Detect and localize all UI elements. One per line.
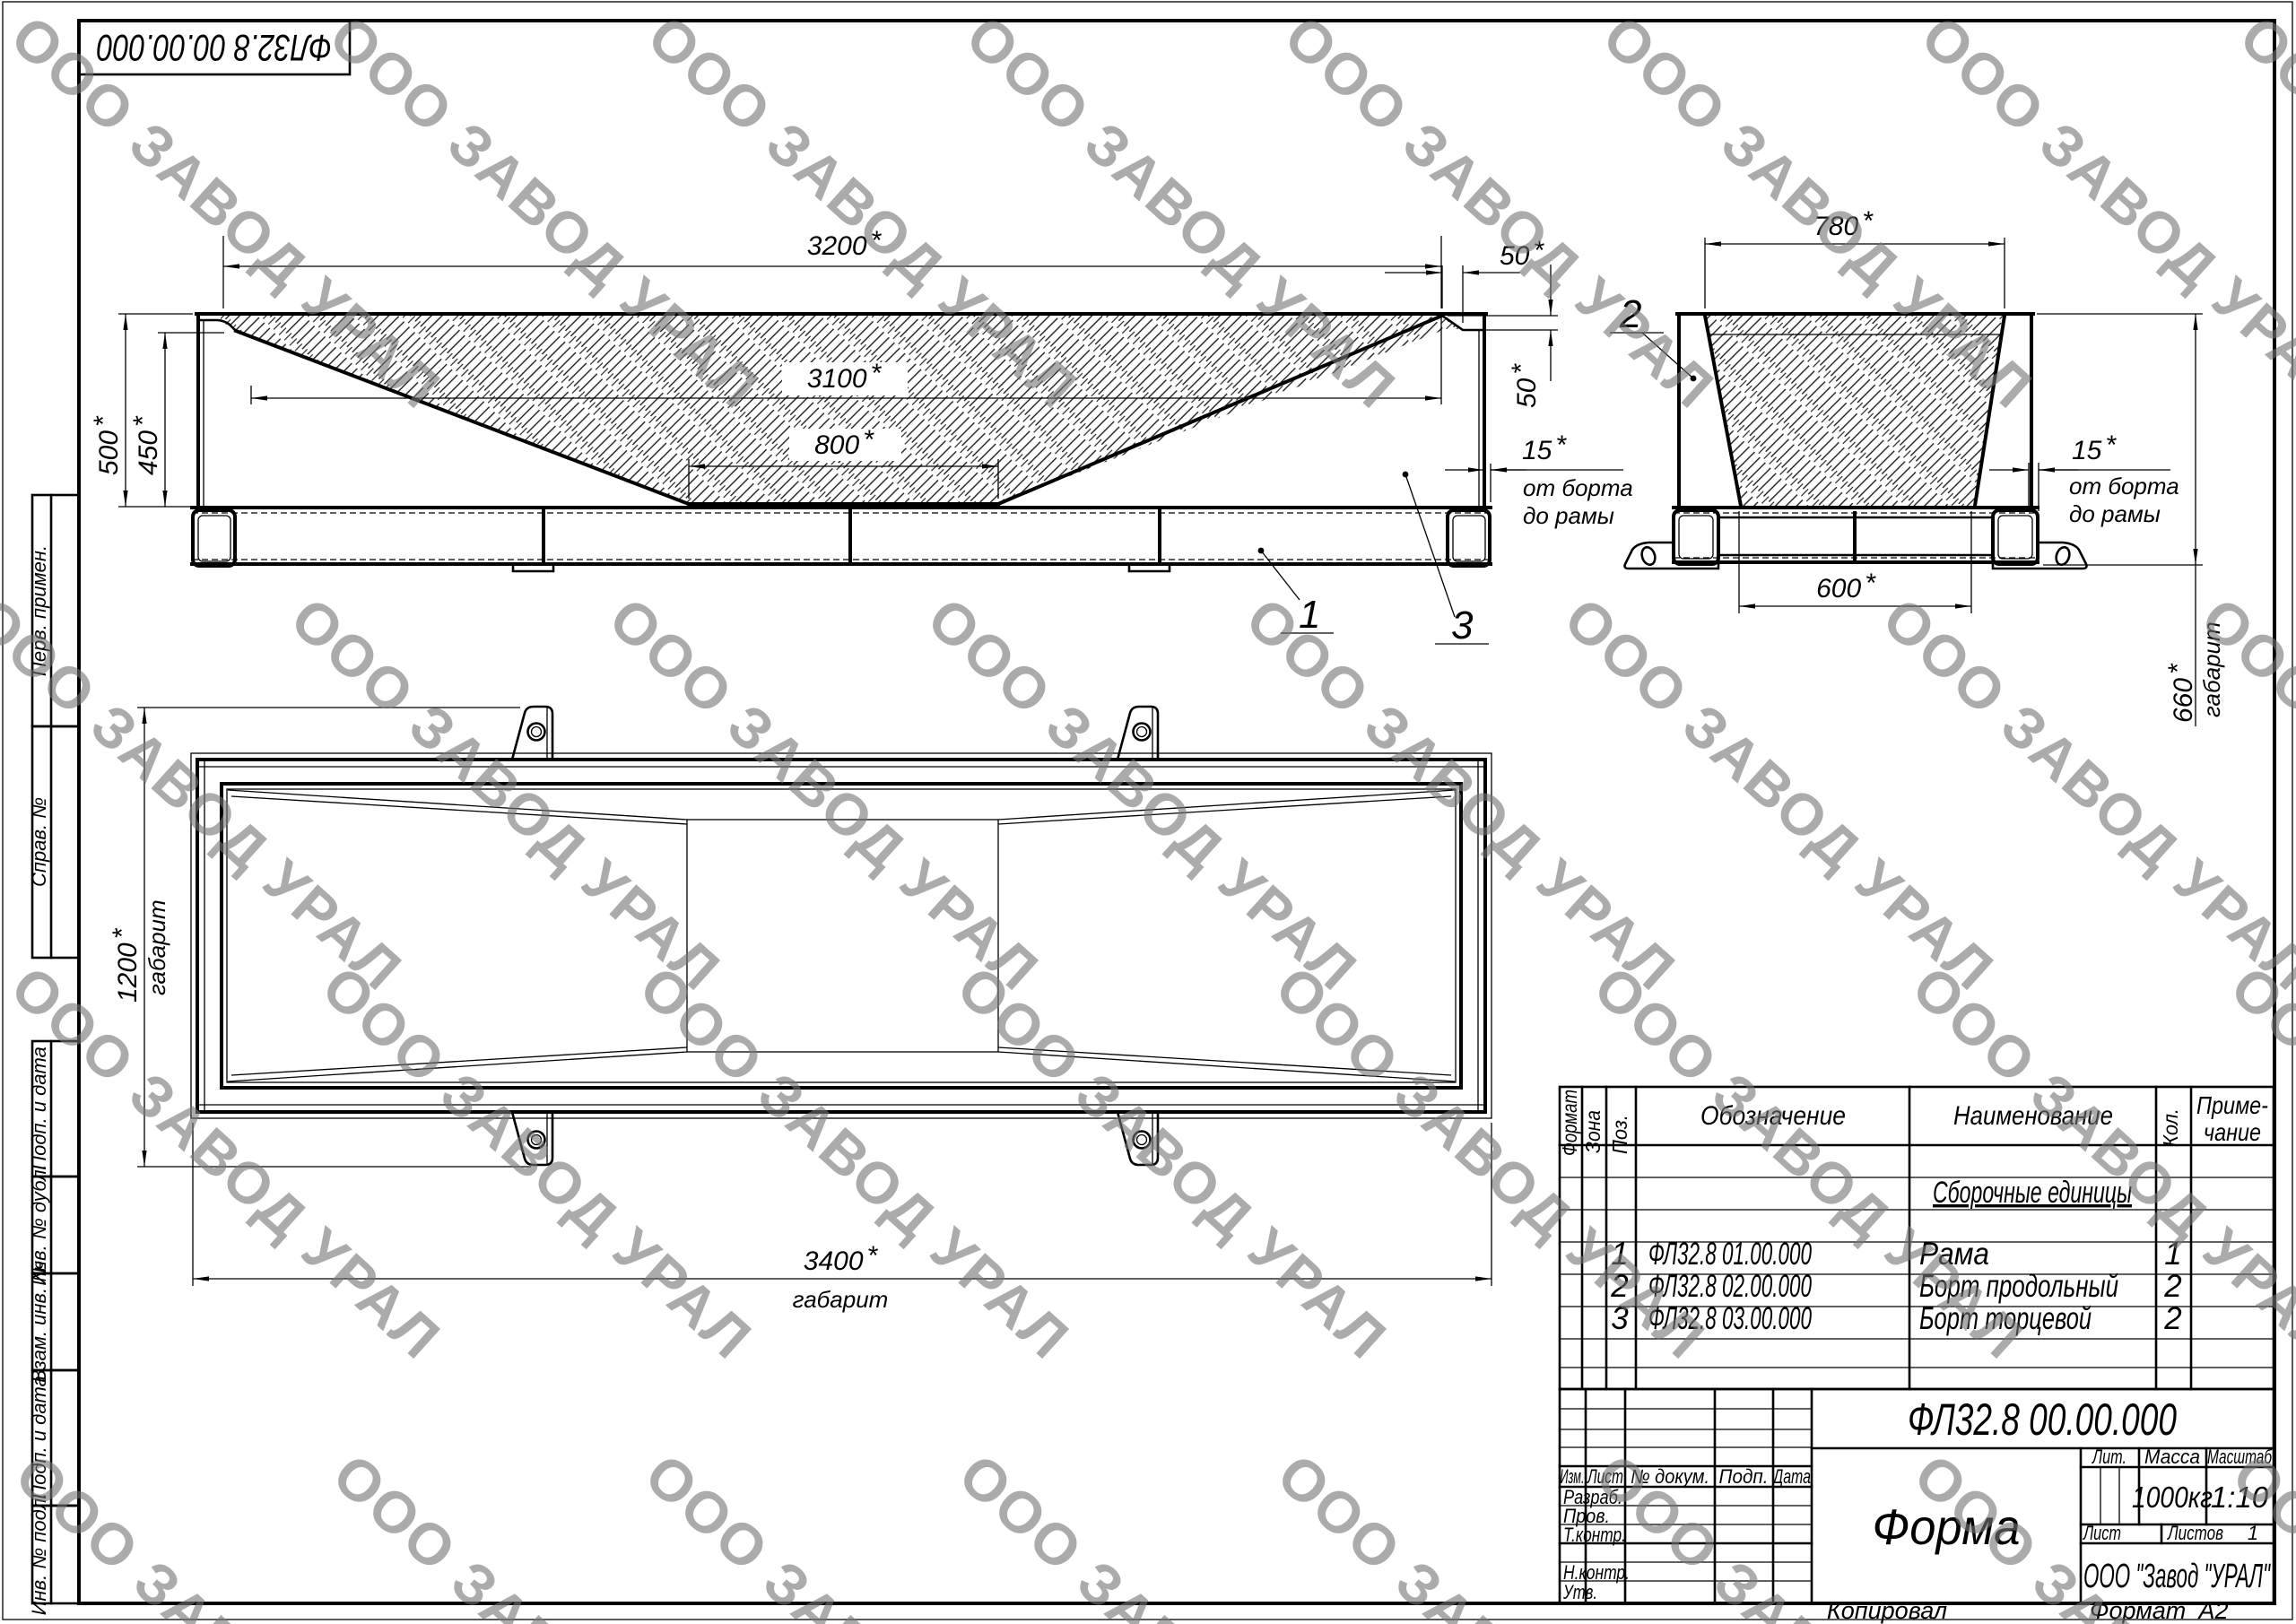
svg-text:от борта: от борта	[1523, 474, 1633, 501]
svg-text:Взам. инв. №: Взам. инв. №	[28, 1261, 50, 1383]
svg-text:Лист: Лист	[2083, 1522, 2121, 1544]
svg-text:Масса: Масса	[2144, 1446, 2200, 1468]
svg-text:2: 2	[2163, 1301, 2181, 1336]
svg-text:Дата: Дата	[1771, 1465, 1811, 1488]
svg-text:ФЛ32.8 01.00.000: ФЛ32.8 01.00.000	[1648, 1237, 1812, 1272]
svg-text:Подп. и дата: Подп. и дата	[28, 1046, 50, 1170]
svg-text:Изм.: Изм.	[1561, 1465, 1585, 1488]
svg-text:Поз.: Поз.	[1608, 1115, 1631, 1154]
svg-text:А2: А2	[2196, 1597, 2228, 1624]
svg-text:Формат: Формат	[1558, 1090, 1581, 1156]
svg-text:Зона: Зона	[1581, 1110, 1605, 1153]
svg-text:до рамы: до рамы	[2069, 500, 2161, 527]
svg-text:от борта: от борта	[2069, 473, 2179, 499]
svg-text:габарит: габарит	[143, 899, 170, 995]
svg-text:3: 3	[1451, 604, 1474, 647]
svg-text:Кол.: Кол.	[2159, 1108, 2182, 1147]
svg-text:Т.контр.: Т.контр.	[1563, 1524, 1626, 1546]
svg-text:1000кг: 1000кг	[2132, 1481, 2213, 1514]
svg-text:Лит.: Лит.	[2092, 1446, 2126, 1468]
svg-text:габарит: габарит	[793, 1286, 889, 1313]
svg-text:Утв.: Утв.	[1562, 1581, 1597, 1603]
svg-text:до рамы: до рамы	[1523, 502, 1614, 529]
svg-text:Листов: Листов	[2166, 1522, 2223, 1544]
svg-text:1: 1	[2248, 1522, 2258, 1544]
svg-text:Справ. №: Справ. №	[28, 797, 50, 887]
svg-text:Копировал: Копировал	[1827, 1597, 1947, 1624]
svg-text:Приме-: Приме-	[2196, 1091, 2268, 1119]
svg-text:чание: чание	[2204, 1118, 2261, 1146]
svg-text:Подп.: Подп.	[1719, 1465, 1769, 1488]
svg-text:ФЛ32.8 00.00.000: ФЛ32.8 00.00.000	[97, 27, 332, 69]
svg-text:2: 2	[2163, 1269, 2181, 1304]
svg-text:ФЛ32.8 00.00.000: ФЛ32.8 00.00.000	[1908, 1394, 2177, 1445]
